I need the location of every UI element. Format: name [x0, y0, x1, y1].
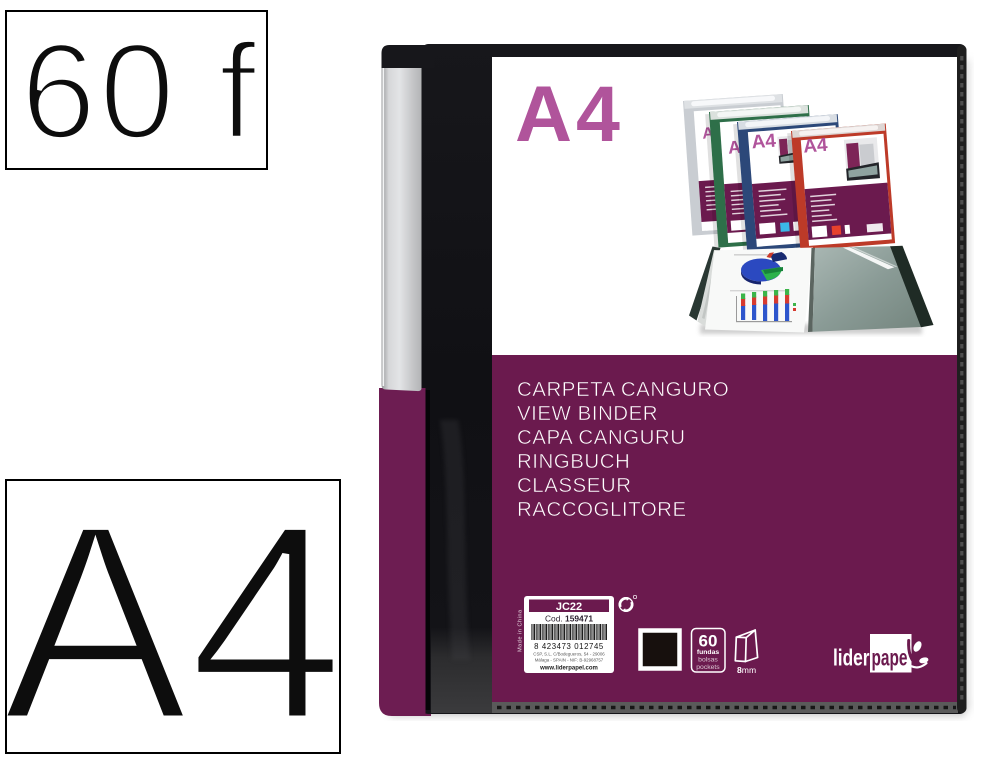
svg-text:RINGBUCH: RINGBUCH	[517, 450, 630, 473]
svg-text:pape: pape	[872, 645, 908, 671]
svg-text:Cod. 159471: Cod. 159471	[545, 614, 593, 624]
svg-text:CARPETA CANGURO: CARPETA CANGURO	[517, 378, 729, 401]
svg-text:Made in China: Made in China	[518, 609, 524, 652]
svg-text:A4: A4	[515, 69, 624, 158]
svg-text:bolsas: bolsas	[698, 657, 718, 664]
svg-text:A4: A4	[802, 135, 828, 158]
svg-text:CSP, S.L. C/Bodegueros, 54 - 2: CSP, S.L. C/Bodegueros, 54 - 29006	[533, 652, 605, 657]
svg-text:Málaga - SPAIN - NIF: B-929687: Málaga - SPAIN - NIF: B-92968757	[535, 658, 604, 663]
svg-text:RACCOGLITORE: RACCOGLITORE	[517, 498, 687, 521]
svg-text:8mm: 8mm	[737, 665, 756, 675]
svg-text:lider: lider	[833, 645, 870, 671]
svg-text:8 423473 012745: 8 423473 012745	[534, 642, 604, 651]
svg-text:www.liderpapel.com: www.liderpapel.com	[539, 666, 598, 672]
svg-text:pockets: pockets	[696, 664, 720, 671]
svg-text:fundas: fundas	[697, 649, 719, 656]
svg-text:VIEW BINDER: VIEW BINDER	[517, 402, 658, 425]
svg-text:CAPA CANGURU: CAPA CANGURU	[517, 426, 686, 449]
svg-text:60: 60	[699, 632, 718, 651]
svg-text:JC22: JC22	[556, 601, 582, 613]
svg-text:A4: A4	[751, 131, 777, 154]
svg-text:CLASSEUR: CLASSEUR	[517, 474, 632, 497]
